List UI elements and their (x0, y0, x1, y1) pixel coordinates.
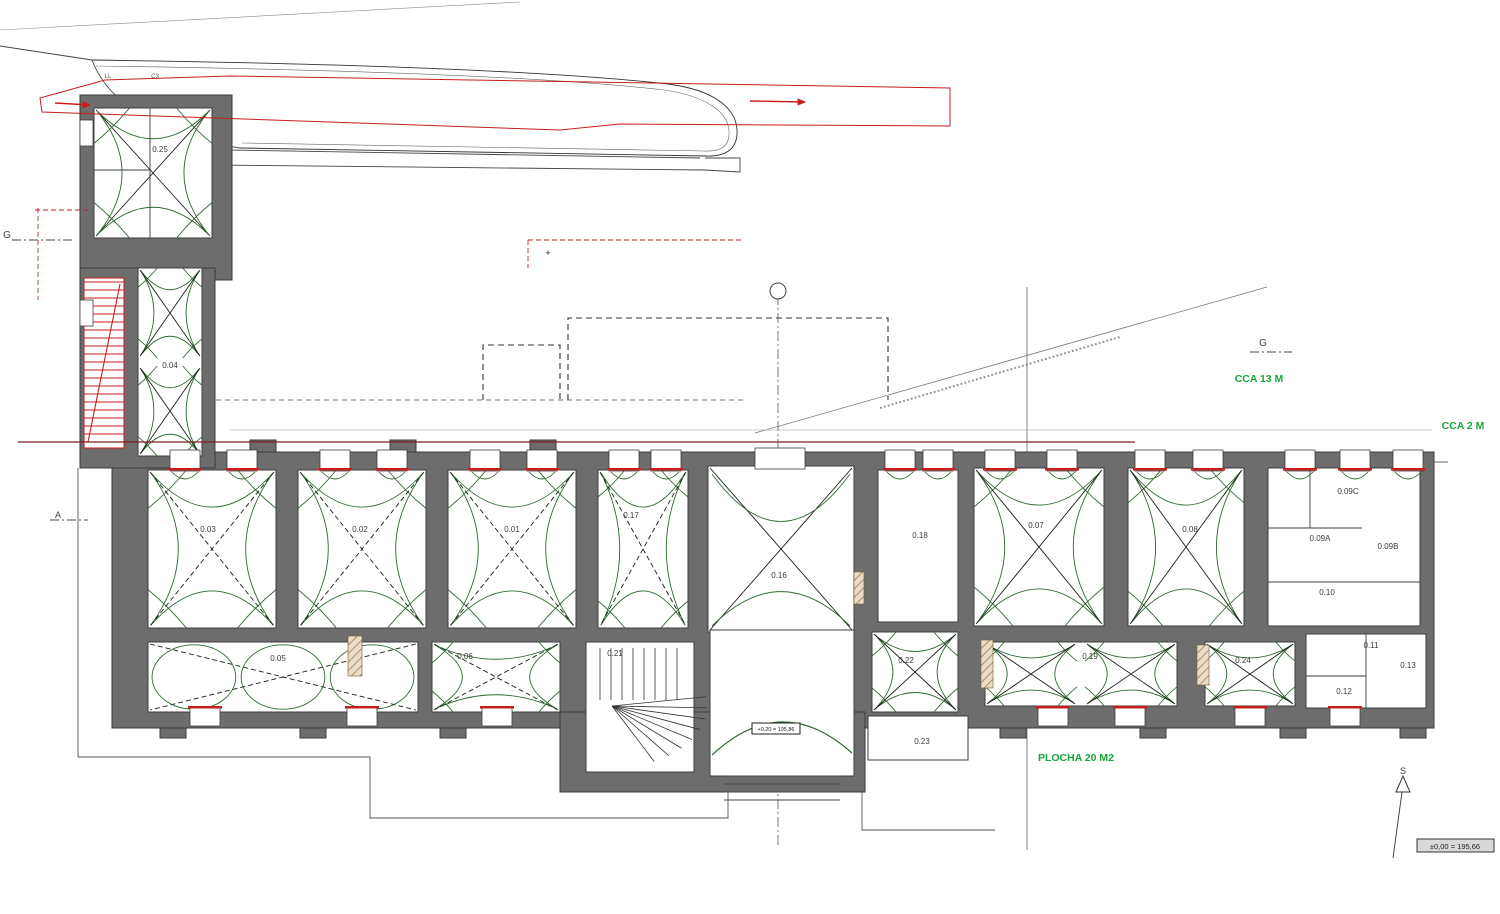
note-plocha: PLOCHA 20 M2 (1038, 752, 1114, 764)
room-label-018: 0.18 (912, 531, 928, 540)
room-label-023: 0.23 (914, 737, 930, 746)
room-label-024: 0.24 (1235, 656, 1251, 665)
room-label-012: 0.12 (1336, 687, 1352, 696)
room-label-006: 0.06 (457, 652, 473, 661)
room-label-022: 0.22 (898, 656, 914, 665)
entry-elevation-text: +0,20 = 195,86 (757, 727, 794, 733)
room-label-010: 0.10 (1319, 588, 1335, 597)
section-mark-g-left: G (3, 230, 11, 241)
floor-plan-page: + 0.25 0.04 0.03 0.02 0.01 0.17 0.16 0.1… (0, 0, 1500, 914)
room-label-003: 0.03 (200, 525, 216, 534)
room-label-025: 0.25 (152, 145, 168, 154)
room-label-007: 0.07 (1028, 521, 1044, 530)
top-note-c3: C3 (151, 74, 159, 80)
elevation-datum-text: ±0,00 = 195,66 (1430, 842, 1480, 851)
note-cca13: CCA 13 M (1235, 373, 1284, 385)
top-note-ll: LL (105, 74, 112, 80)
room-label-001: 0.01 (504, 525, 520, 534)
north-arrow-label: S (1400, 766, 1406, 776)
svg-text:+: + (545, 248, 550, 258)
room-label-009a: 0.09A (1310, 534, 1332, 543)
room-label-009b: 0.09B (1378, 542, 1399, 551)
room-label-002: 0.02 (352, 525, 368, 534)
section-mark-a: A (55, 510, 61, 520)
note-cca2: CCA 2 M (1442, 420, 1485, 432)
room-label-016: 0.16 (771, 571, 787, 580)
room-label-008: 0.08 (1182, 525, 1198, 534)
room-label-005: 0.05 (270, 654, 286, 663)
room-label-019: 0.19 (1082, 652, 1098, 661)
room-label-004: 0.04 (162, 361, 178, 370)
floor-plan-drawing: + 0.25 0.04 0.03 0.02 0.01 0.17 0.16 0.1… (0, 0, 1500, 914)
room-label-011: 0.11 (1364, 641, 1380, 650)
room-label-009c: 0.09C (1337, 487, 1359, 496)
room-label-017: 0.17 (623, 511, 639, 520)
room-label-021: 0.21 (607, 649, 623, 658)
room-label-013: 0.13 (1400, 661, 1416, 670)
section-mark-g-right: G (1259, 338, 1267, 349)
